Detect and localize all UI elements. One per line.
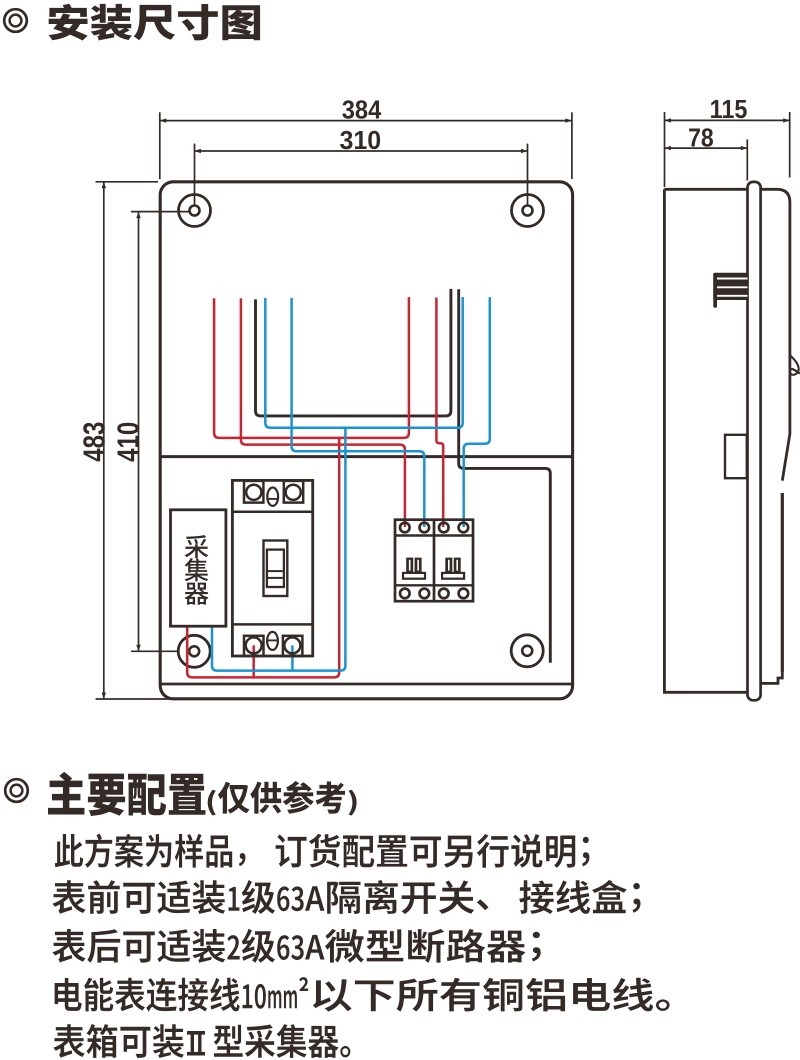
svg-text:410: 410 [111,422,145,462]
svg-text:78: 78 [688,124,714,153]
svg-text:384: 384 [342,95,382,124]
svg-text:483: 483 [77,422,111,462]
svg-text:310: 310 [339,126,381,155]
svg-text:115: 115 [710,95,748,125]
